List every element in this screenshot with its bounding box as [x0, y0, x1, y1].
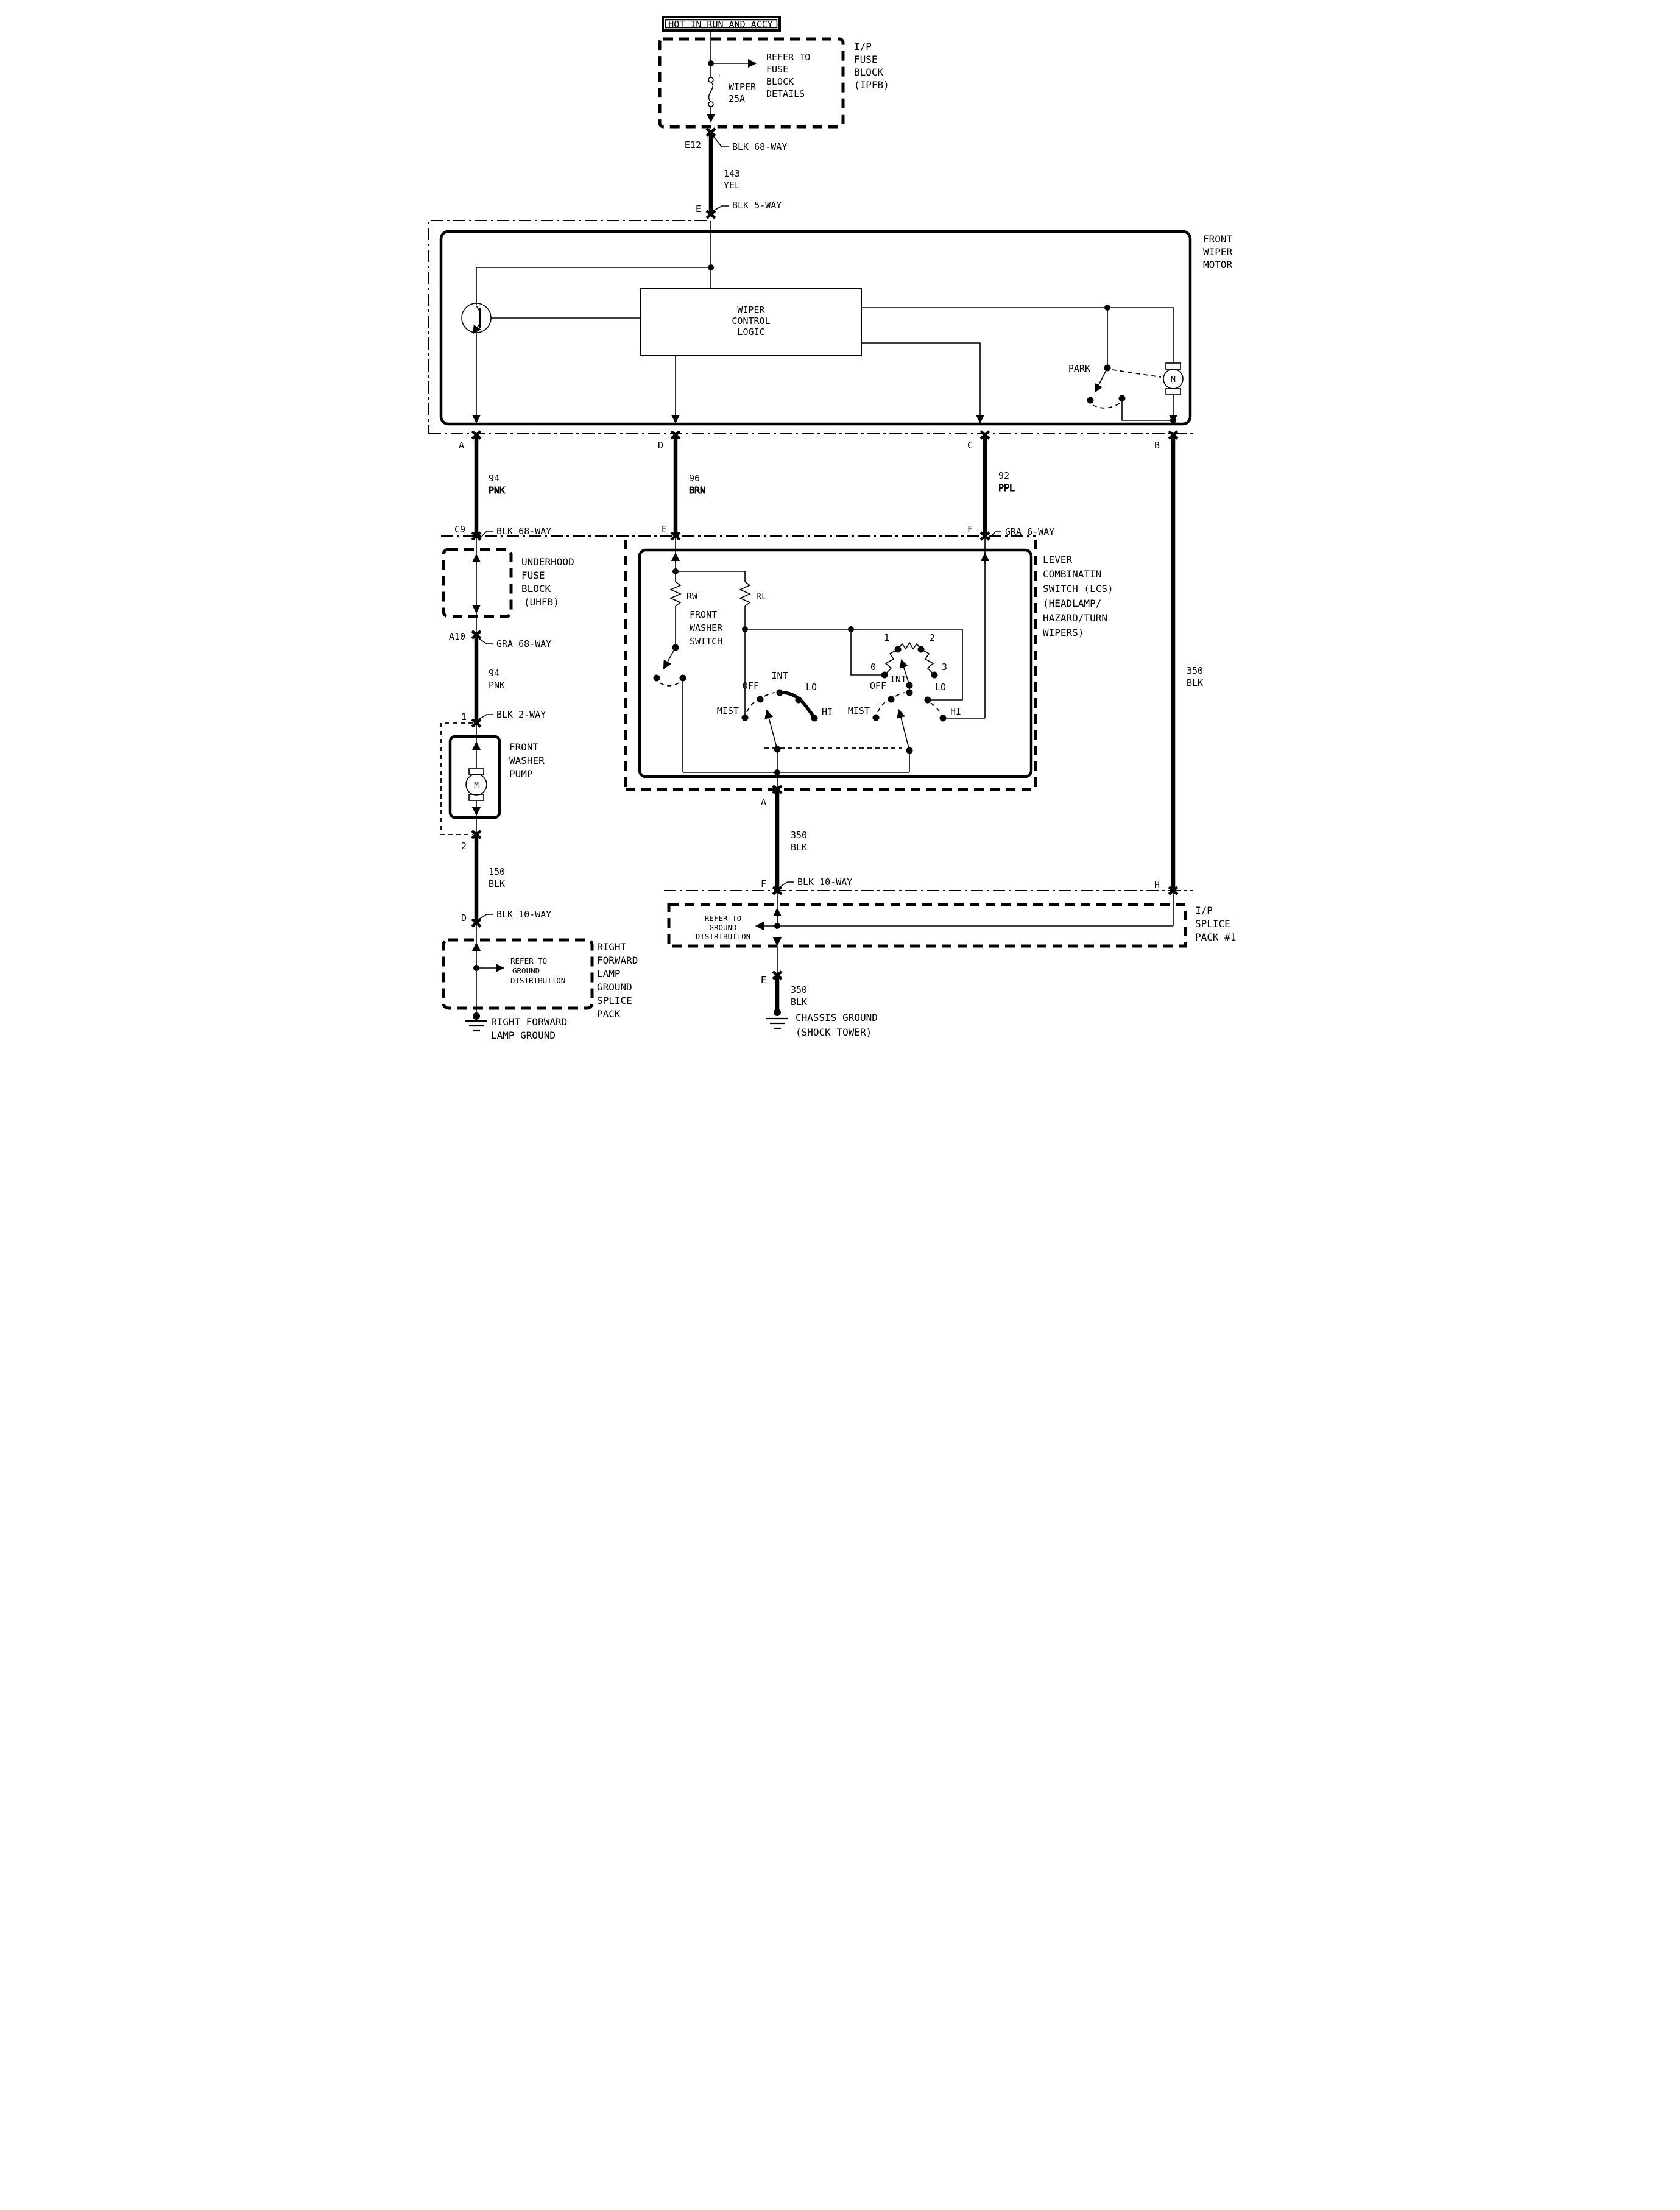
ground-dot [774, 1009, 781, 1016]
wire-color: BLK [489, 878, 505, 889]
pin-label: A10 [448, 631, 465, 642]
wire-92-ppl: 92 PPL [981, 431, 1015, 540]
switch-name-line: WASHER [690, 623, 723, 634]
pump-outline [450, 736, 499, 817]
pin-label: E [760, 975, 766, 986]
component-name-line: SWITCH (LCS) [1043, 583, 1114, 595]
front-washer-pump: M FRONT WASHER PUMP 2 [441, 723, 545, 852]
ipfb-name-line: FUSE [854, 54, 878, 65]
switch-contact-lo [924, 697, 931, 704]
motor-internal-wiring [476, 221, 1173, 420]
wire-gauge: 96 [689, 473, 700, 484]
connector-type: BLK 68-WAY [496, 526, 551, 537]
component-name-line: FRONT [509, 741, 539, 753]
brush-block [1166, 363, 1181, 369]
front-wiper-wiring-diagram: HOT IN RUN AND ACCY REFER TO FUSE BLOCK … [420, 0, 1260, 1105]
refer-ground-line: REFER TO [510, 956, 547, 966]
park-contact [1118, 395, 1125, 402]
rflg-splice-pack: REFER TO GROUND DISTRIBUTION RIGHT FORWA… [443, 923, 638, 1041]
position-label: OFF [742, 680, 758, 691]
junction-dot [708, 60, 714, 66]
connector-type: BLK 2-WAY [496, 709, 546, 720]
pin-label: 2 [461, 841, 466, 852]
lcs-harness-outline [626, 540, 1036, 789]
wiring-diagram-page: HOT IN RUN AND ACCY REFER TO FUSE BLOCK … [420, 0, 1260, 1105]
component-name-line: HAZARD/TURN [1043, 612, 1107, 624]
component-name-line: WIPERS) [1043, 627, 1084, 638]
refer-ground-line: REFER TO [704, 914, 741, 923]
pin-label: E [695, 203, 701, 214]
connector-leader [479, 638, 493, 644]
switch-name-line: SWITCH [690, 636, 722, 647]
pot-position: 0 [870, 662, 875, 673]
connector-type: GRA 6-WAY [1005, 526, 1054, 537]
wire-143-yel: E12 BLK 68-WAY 143 YEL E BLK 5-WAY [684, 129, 786, 218]
pin-label: A [458, 440, 464, 451]
position-label: HI [822, 707, 833, 718]
component-name-line: UNDERHOOD [521, 556, 574, 568]
pin-label: F [967, 524, 972, 535]
component-name-line: GROUND [597, 981, 632, 993]
logic-label-line: CONTROL [732, 316, 770, 327]
junction-dot [742, 626, 748, 632]
component-name-line: MOTOR [1203, 259, 1233, 270]
junction-dot [774, 923, 780, 929]
ground-name-line: CHASSIS GROUND [796, 1012, 878, 1023]
component-name-line: WASHER [509, 755, 545, 766]
park-switch-arm [1095, 368, 1107, 392]
wire-350-blk-center: 350 BLK F BLK 10-WAY [760, 789, 852, 894]
wiper-motor-outline [441, 231, 1190, 424]
switch-shorting-arc [780, 693, 814, 718]
ground-symbol-icon [766, 1009, 788, 1028]
wire-color: PNK [489, 485, 505, 496]
pot-position: 3 [942, 662, 947, 673]
component-name-line: SPLICE [597, 995, 632, 1006]
transistor-icon [462, 303, 641, 333]
resistor-zigzag [671, 582, 680, 606]
banner-label: HOT IN RUN AND ACCY [668, 19, 773, 30]
ground-name-line: RIGHT FORWARD [491, 1016, 567, 1028]
wire-gauge: 350 [791, 984, 807, 995]
harness-boundary [429, 221, 707, 434]
junction-dot [848, 626, 854, 632]
connector-type: GRA 68-WAY [496, 638, 551, 649]
switch-contact-hi [939, 715, 946, 722]
pot-position: 1 [883, 632, 889, 643]
switch-arm-arrow [664, 648, 676, 668]
refer-fuse-line: DETAILS [766, 88, 805, 99]
connector-leader [780, 882, 794, 887]
refer-ground-line: DISTRIBUTION [510, 976, 565, 985]
ground-symbol-icon [465, 1012, 487, 1031]
position-label: LO [806, 682, 817, 693]
pin-label: C9 [454, 524, 465, 535]
pump-motor-icon: M [466, 769, 487, 800]
component-name-line: PACK #1 [1195, 931, 1236, 943]
switch-name-line: FRONT [690, 609, 717, 620]
switch-contact-mist [872, 715, 879, 721]
park-label: PARK [1068, 363, 1090, 374]
ground-name-line: LAMP GROUND [491, 1029, 556, 1041]
component-name-line: FRONT [1203, 233, 1233, 245]
pin-label: H [1154, 880, 1159, 891]
front-wiper-motor: FRONT WIPER MOTOR WIPER CONTROL LOGIC PA… [441, 221, 1233, 424]
junction-dot [672, 568, 679, 574]
junction-dot [774, 769, 780, 775]
refer-ground-line: GROUND [512, 966, 540, 975]
connector-leader [713, 136, 729, 147]
component-name-line: WIPER [1203, 246, 1233, 258]
component-name-line: SPLICE [1195, 918, 1230, 930]
logic-label-line: WIPER [737, 305, 765, 316]
fuse-name: WIPER [729, 82, 757, 93]
refer-ground-line: DISTRIBUTION [695, 932, 750, 941]
pot-position: 2 [930, 632, 935, 643]
motor-letter: M [474, 780, 479, 789]
position-label: MIST [716, 705, 738, 716]
connector-leader [479, 914, 493, 919]
resistor-rw-icon: RW [671, 582, 698, 606]
wire-gauge: 92 [998, 470, 1009, 481]
pin-label: E12 [684, 139, 701, 150]
pin-label: F [760, 878, 766, 889]
wire-350-blk-right: 350 BLK H [1154, 431, 1202, 894]
wire-96-brn: 96 BRN [671, 431, 705, 540]
motor-letter: M [1171, 375, 1176, 384]
position-label: INT [889, 674, 906, 685]
wire-color: BLK [791, 997, 807, 1008]
component-name-line: FORWARD [597, 955, 638, 966]
wire-color: BLK [1187, 677, 1203, 688]
pin-label: A [760, 797, 766, 808]
position-label: MIST [847, 705, 869, 716]
refer-fuse-line: REFER TO [766, 52, 810, 63]
component-name-line: PUMP [509, 768, 533, 780]
uhfb-outline [443, 549, 511, 616]
position-label: LO [935, 682, 946, 693]
pin-label: D [657, 440, 663, 451]
lcs-outline [640, 550, 1031, 777]
power-source-banner: HOT IN RUN AND ACCY [663, 17, 780, 30]
component-name-line: I/P [1195, 905, 1213, 916]
component-name-line: LEVER [1043, 554, 1073, 565]
switch-contact-arc [660, 682, 680, 686]
fuse-terminal [708, 77, 713, 82]
potentiometer-zigzag [884, 643, 934, 675]
ip-splice-pack: REFER TO GROUND DISTRIBUTION I/P SPLICE … [669, 891, 1236, 986]
pot-contact [894, 646, 901, 653]
component-name-line: BLOCK [521, 583, 551, 595]
front-washer-switch: FRONT WASHER SWITCH [653, 609, 723, 686]
underhood-fuse-block: C9 BLK 68-WAY UNDERHOOD FUSE BLOCK (UHFB… [443, 524, 574, 634]
position-label: HI [950, 706, 961, 717]
position-label: INT [771, 670, 788, 681]
pot-contact [917, 646, 924, 653]
motor-armature-icon: M [1163, 363, 1183, 395]
switch-contact-int [906, 690, 912, 696]
wire-color: YEL [724, 180, 740, 191]
wire-94-pnk: 94 PNK [472, 431, 505, 540]
pot-contact [881, 672, 888, 679]
wire-gauge: 143 [724, 168, 740, 179]
junction-dot [473, 965, 479, 971]
wire-gauge: 94 [489, 668, 499, 679]
junction-dot [1104, 305, 1110, 311]
position-label: OFF [869, 680, 886, 691]
motor-pin-row: A D C B [458, 440, 1159, 451]
ipfb-name-line: I/P [854, 41, 872, 52]
park-contact [1087, 397, 1093, 404]
fuse-plus: + [717, 71, 722, 80]
component-name-line: (UHFB) [524, 596, 559, 608]
lcs-internal-wiring [676, 538, 985, 789]
chassis-ground-run: 350 BLK CHASSIS GROUND (SHOCK TOWER) [766, 975, 878, 1038]
wire-150-blk: 150 BLK D BLK 10-WAY [461, 835, 551, 927]
connector-type: BLK 68-WAY [732, 141, 787, 152]
pin-label: C [967, 440, 972, 451]
pin-label: E [661, 524, 666, 535]
component-name-line: PACK [597, 1008, 621, 1020]
component-name-line: (HEADLAMP/ [1043, 598, 1101, 609]
wire-gauge: 350 [1187, 665, 1203, 676]
wire-color: BRN [689, 485, 705, 496]
connector-type: BLK 10-WAY [797, 877, 852, 888]
wire-color: PNK [489, 680, 505, 691]
connector-type: BLK 5-WAY [732, 200, 782, 211]
refer-fuse-line: BLOCK [766, 76, 794, 87]
component-name-line: FUSE [521, 570, 545, 581]
brush-block [1166, 389, 1181, 395]
switch-contact-off [757, 696, 763, 703]
pin-label: B [1154, 440, 1159, 451]
pin-label: D [461, 913, 466, 923]
component-name-line: LAMP [597, 968, 621, 980]
park-contact-arc [1093, 403, 1120, 408]
lever-combination-switch: E F GRA 6-WAY LEVER COMBINATIN SWITCH (L… [626, 524, 1114, 808]
pin-label: 1 [461, 711, 466, 722]
ground-dot [473, 1012, 480, 1020]
ground-name-line: (SHOCK TOWER) [796, 1026, 872, 1038]
pot-contact [931, 672, 937, 679]
ipfb-name-line: BLOCK [854, 66, 884, 78]
connector-leader [479, 715, 493, 719]
junction-dot [708, 264, 714, 270]
fuse-element [708, 82, 713, 102]
wire-94-pnk-lower: A10 GRA 68-WAY 94 PNK 1 BLK 2-WAY [448, 631, 551, 727]
component-name-line: COMBINATIN [1043, 568, 1101, 580]
logic-label-line: LOGIC [737, 327, 764, 337]
resistor-label: RL [756, 591, 767, 602]
switch-wiper-arrow [899, 710, 909, 750]
switch-wiper-arrow [767, 711, 777, 749]
wire-gauge: 150 [489, 866, 505, 877]
fuse-icon [708, 77, 713, 107]
switch-contact-off [888, 696, 894, 703]
wiper-mode-switch-left: MIST OFF INT LO HI [716, 670, 832, 753]
fuse-terminal [708, 102, 713, 107]
switch-contact-mist [741, 715, 748, 721]
wiper-mode-switch-right: MIST OFF INT LO HI [847, 674, 961, 754]
wire-gauge: 94 [489, 473, 499, 484]
ipfb-name-line: (IPFB) [854, 79, 889, 91]
wire-gauge: 350 [791, 830, 807, 841]
wiper-control-logic: WIPER CONTROL LOGIC [641, 288, 861, 356]
wire-color: BLK [791, 842, 807, 853]
refer-ground-line: GROUND [709, 923, 736, 932]
resistor-zigzag [740, 582, 750, 606]
wire-color: PPL [998, 482, 1015, 493]
resistor-rl-icon: RL [740, 582, 767, 606]
resistor-label: RW [686, 591, 698, 602]
refer-fuse-line: FUSE [766, 64, 788, 75]
fuse-rating: 25A [729, 93, 745, 104]
connector-type: BLK 10-WAY [496, 909, 551, 920]
component-name-line: RIGHT [597, 941, 627, 953]
switch-contact [653, 675, 660, 682]
park-mechanical-link [1112, 370, 1161, 377]
switch-contact [679, 675, 686, 682]
park-switch: PARK [1068, 363, 1160, 408]
connector-leader [713, 206, 729, 211]
ip-fuse-block: REFER TO FUSE BLOCK DETAILS + WIPER 25A … [660, 30, 889, 127]
